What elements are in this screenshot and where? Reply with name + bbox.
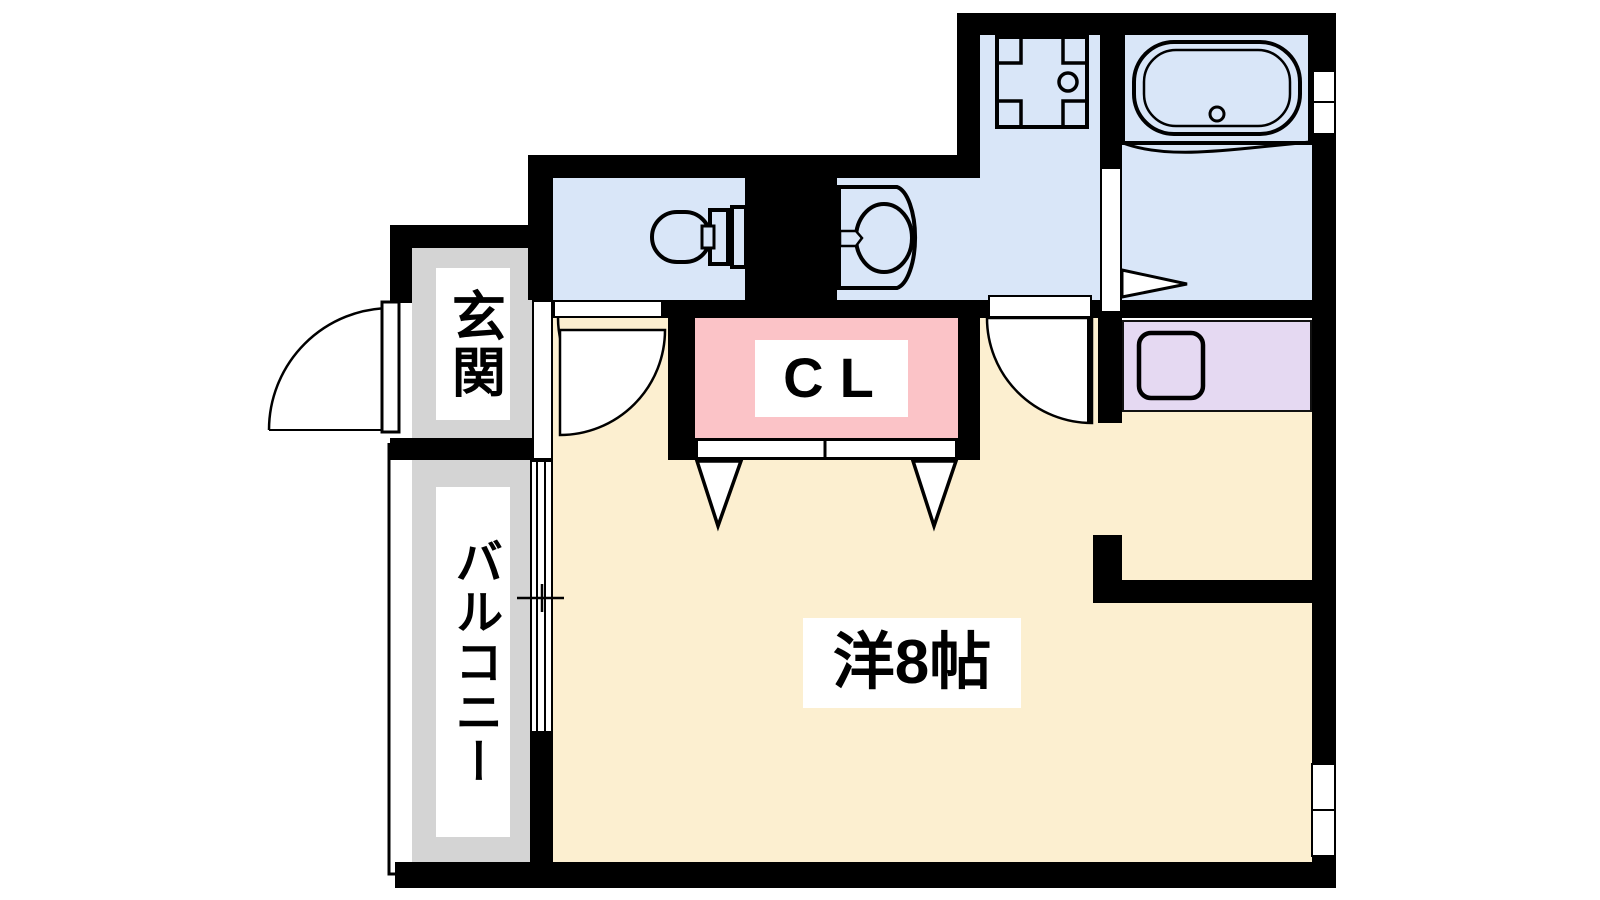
- floor-plan: 玄関 バルコニー CL 洋8帖: [0, 0, 1600, 900]
- wall-entrance-left: [390, 248, 412, 305]
- wall-bath-door-upper: [1100, 35, 1122, 167]
- entrance-door-opening: [390, 303, 412, 438]
- toilet-room-floor: [553, 178, 745, 300]
- bathroom-door: [1100, 167, 1122, 313]
- bath-window: [1312, 70, 1336, 135]
- wall-right: [1312, 13, 1336, 862]
- kitchen-floor: [980, 35, 1100, 300]
- wall-closet-right: [958, 300, 980, 460]
- balcony-label: バルコニー: [436, 487, 510, 837]
- wall-bath-bottom: [1092, 300, 1335, 318]
- room-strip-floor: [1098, 423, 1122, 460]
- wall-top: [957, 13, 1335, 35]
- toilet-door: [553, 300, 663, 318]
- wall-bottom: [395, 862, 1336, 888]
- wall-stub-horizontal: [1093, 580, 1336, 603]
- washroom-floor: [837, 178, 980, 300]
- main-room-label: 洋8帖: [803, 618, 1021, 708]
- utility-nook-floor: [1122, 320, 1312, 412]
- entrance-label: 玄関: [436, 268, 510, 420]
- wall-entrance-balcony: [390, 438, 532, 460]
- closet-doors: [695, 438, 958, 460]
- wall-closet-left: [668, 300, 695, 460]
- wall-utility-left: [1098, 318, 1122, 423]
- entrance-threshold: [532, 300, 553, 460]
- hall-extension-floor: [980, 318, 1098, 460]
- wall-toilet-right-duct: [745, 155, 837, 300]
- hallway-floor: [553, 300, 668, 460]
- wall-kitchen-left: [957, 13, 980, 178]
- wall-mid-horizontal: [663, 300, 988, 318]
- room-window: [1311, 763, 1336, 857]
- entrance-door-arc-icon: [269, 302, 399, 432]
- room-strip2-floor: [1122, 412, 1312, 460]
- bathroom-floor: [1122, 35, 1312, 300]
- washroom-door: [988, 295, 1092, 318]
- balcony-railing-icon: [389, 443, 401, 874]
- balcony-window: [530, 460, 553, 733]
- wall-balcony-lower: [530, 733, 553, 865]
- closet-label: CL: [755, 340, 908, 417]
